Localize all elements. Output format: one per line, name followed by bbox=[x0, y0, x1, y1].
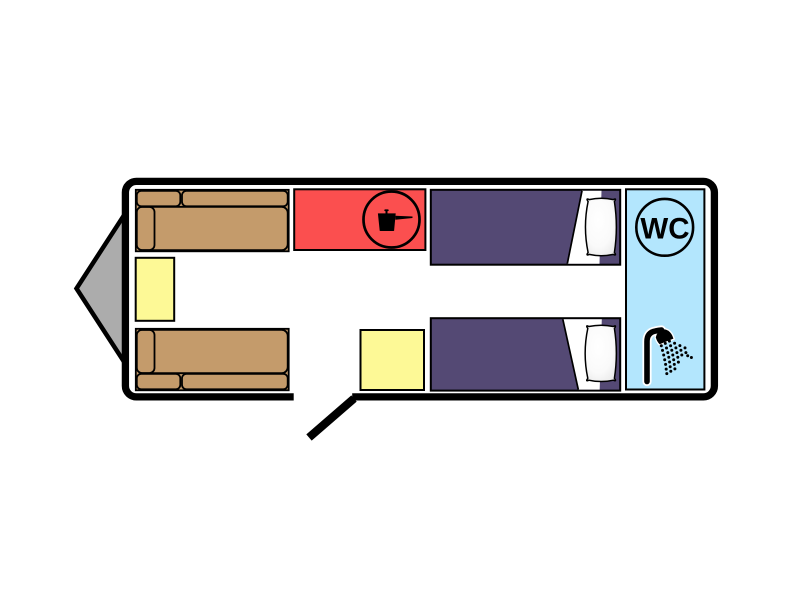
svg-text:WC: WC bbox=[640, 212, 689, 245]
